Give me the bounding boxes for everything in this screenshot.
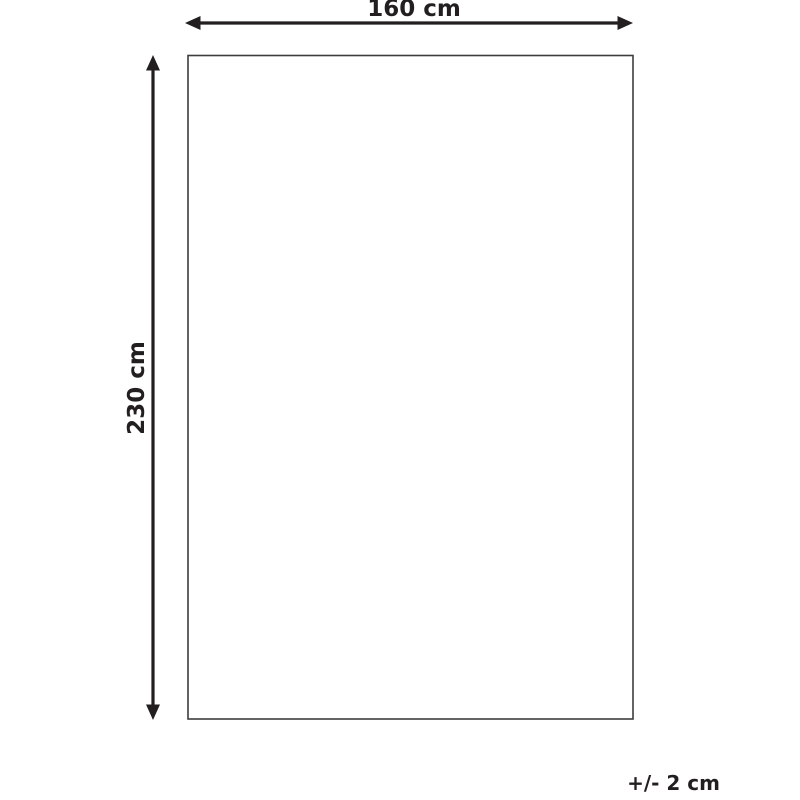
tolerance-label: +/- 2 cm	[627, 771, 720, 795]
height-dimension-label: 230 cm	[124, 341, 150, 435]
diagram-canvas	[0, 0, 800, 800]
height-arrow-bottom-head-icon	[146, 705, 160, 721]
dimension-diagram: 160 cm 230 cm +/- 2 cm	[0, 0, 800, 800]
width-dimension-label: 160 cm	[190, 0, 638, 22]
height-arrow-top-head-icon	[146, 55, 160, 71]
product-outline-rect	[188, 56, 633, 720]
